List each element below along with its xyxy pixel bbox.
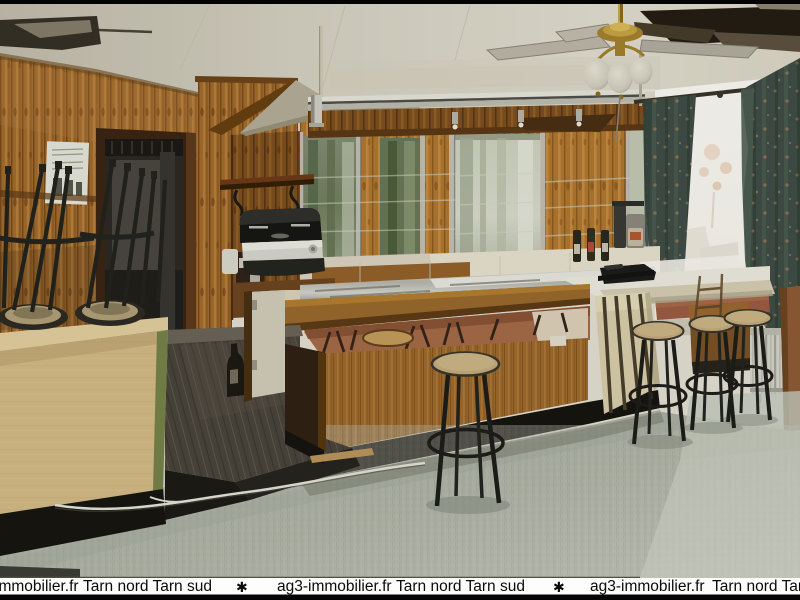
svg-text:Tarn nord Tarn sud: Tarn nord Tarn sud (83, 578, 212, 595)
svg-text:ag3-immobilier.fr: ag3-immobilier.fr (277, 578, 392, 595)
svg-text:Tarn nord Tarn sud: Tarn nord Tarn sud (396, 578, 525, 595)
svg-text:ag3-immobilier.fr: ag3-immobilier.fr (0, 578, 79, 595)
svg-text:✱: ✱ (553, 579, 565, 595)
svg-text:Tarn nord Tarn sud: Tarn nord Tarn sud (712, 578, 800, 595)
svg-text:✱: ✱ (236, 579, 248, 595)
svg-text:ag3-immobilier.fr: ag3-immobilier.fr (590, 578, 705, 595)
